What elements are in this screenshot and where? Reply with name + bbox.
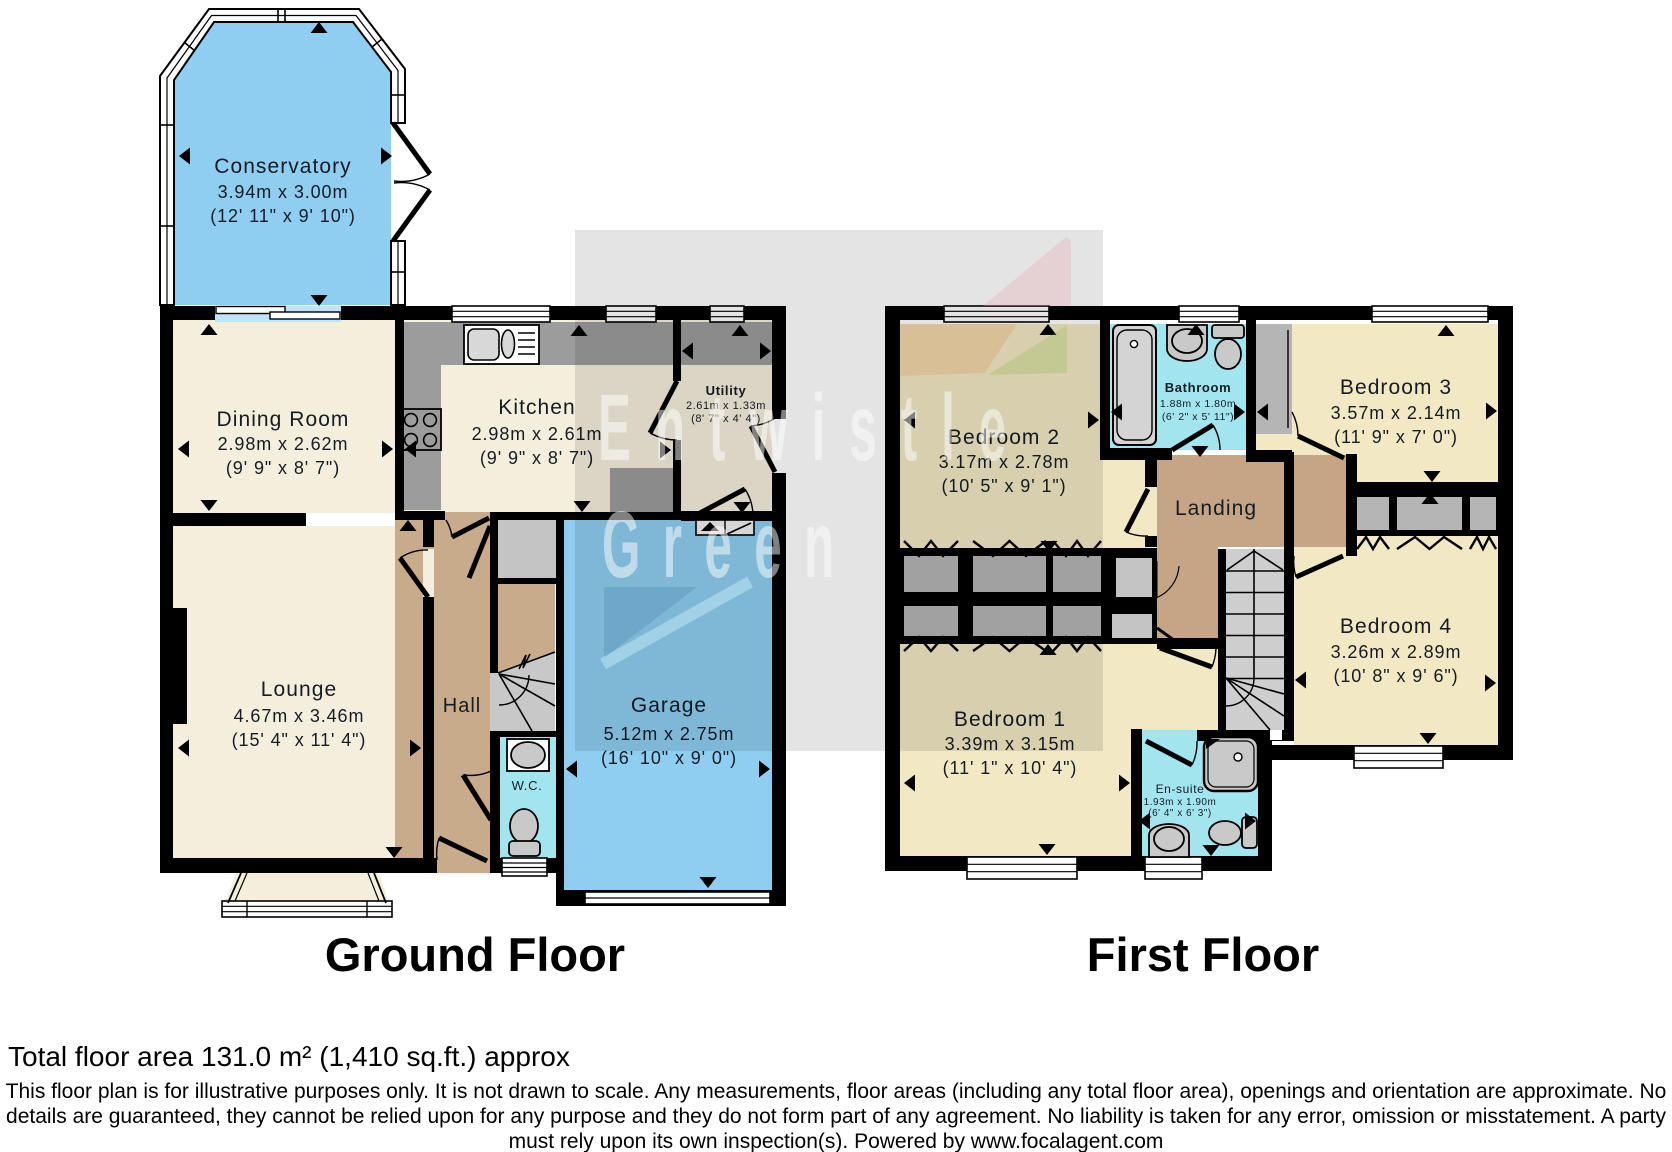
- svg-text:First Floor: First Floor: [1087, 928, 1319, 981]
- svg-text:Bedroom 3: Bedroom 3: [1340, 376, 1452, 399]
- svg-text:(9' 9" x 8' 7"): (9' 9" x 8' 7"): [226, 458, 340, 478]
- svg-text:must rely upon its own inspect: must rely upon its own inspection(s). Po…: [509, 1130, 1164, 1152]
- svg-text:Entwistle: Entwistle: [598, 375, 1030, 482]
- svg-text:Kitchen: Kitchen: [498, 396, 575, 419]
- svg-text:(6' 2" x 5' 11"): (6' 2" x 5' 11"): [1162, 411, 1234, 423]
- svg-text:(12' 11" x 9' 10"): (12' 11" x 9' 10"): [210, 206, 356, 226]
- svg-text:3.94m x 3.00m: 3.94m x 3.00m: [218, 182, 349, 202]
- svg-text:1.93m x 1.90m: 1.93m x 1.90m: [1144, 797, 1217, 808]
- svg-text:2.98m x 2.62m: 2.98m x 2.62m: [218, 434, 349, 454]
- svg-text:3.57m x 2.14m: 3.57m x 2.14m: [1331, 403, 1462, 423]
- svg-text:1.88m x 1.80m: 1.88m x 1.80m: [1160, 398, 1236, 410]
- svg-text:Conservatory: Conservatory: [214, 155, 351, 178]
- svg-text:(10' 8" x 9' 6"): (10' 8" x 9' 6"): [1333, 666, 1458, 686]
- svg-text:W.C.: W.C.: [512, 778, 543, 793]
- svg-text:Bedroom 4: Bedroom 4: [1340, 615, 1452, 638]
- svg-text:(11' 9" x 7' 0"): (11' 9" x 7' 0"): [1334, 427, 1458, 447]
- svg-text:(15' 4" x 11' 4"): (15' 4" x 11' 4"): [232, 730, 367, 750]
- svg-text:details are guaranteed, they c: details are guaranteed, they cannot be r…: [6, 1105, 1666, 1128]
- svg-text:Lounge: Lounge: [261, 678, 337, 701]
- svg-text:Total floor area 131.0 m² (1,4: Total floor area 131.0 m² (1,410 sq.ft.)…: [8, 1041, 570, 1072]
- svg-text:3.26m x 2.89m: 3.26m x 2.89m: [1331, 642, 1462, 662]
- svg-text:Landing: Landing: [1175, 497, 1257, 520]
- svg-text:(6' 4" x 6' 3"): (6' 4" x 6' 3"): [1148, 808, 1211, 819]
- svg-text:En-suite: En-suite: [1156, 782, 1205, 796]
- svg-text:Hall: Hall: [443, 695, 481, 717]
- svg-text:Green: Green: [602, 492, 857, 599]
- svg-text:Ground Floor: Ground Floor: [325, 928, 625, 981]
- svg-text:This floor plan is for illustr: This floor plan is for illustrative purp…: [6, 1080, 1667, 1103]
- svg-text:4.67m x 3.46m: 4.67m x 3.46m: [234, 706, 365, 726]
- svg-text:Dining Room: Dining Room: [217, 408, 350, 431]
- svg-text:Bathroom: Bathroom: [1165, 380, 1232, 395]
- svg-text:(11' 1" x 10' 4"): (11' 1" x 10' 4"): [943, 758, 1078, 778]
